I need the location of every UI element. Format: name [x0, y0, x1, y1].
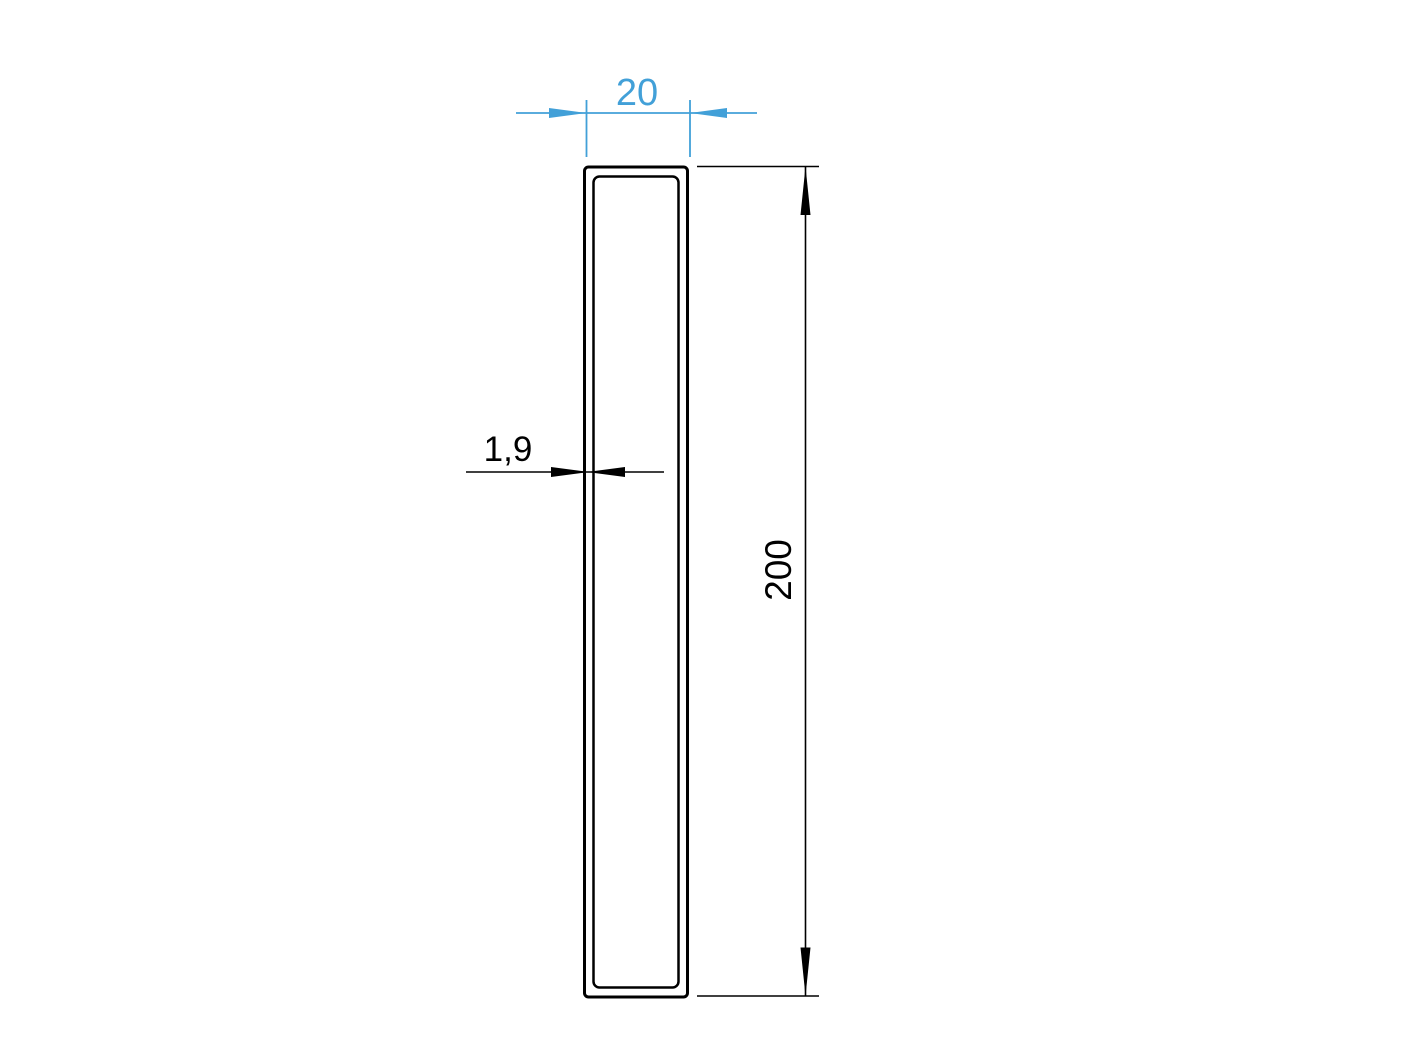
tube-inner-profile [594, 177, 679, 988]
drawing-canvas: 20 1,9 200 [0, 0, 1417, 1062]
technical-drawing: 20 1,9 200 [0, 0, 1417, 1062]
height-dimension-label: 200 [758, 539, 799, 601]
height-dimension: 200 [697, 167, 819, 997]
tube-profile [585, 167, 688, 997]
thickness-dimension-label: 1,9 [484, 430, 533, 469]
width-arrowhead-right-icon [690, 108, 727, 118]
thickness-dimension: 1,9 [466, 430, 664, 477]
width-arrowhead-left-icon [549, 108, 587, 118]
height-arrowhead-down-icon [801, 948, 811, 997]
width-dimension: 20 [516, 72, 757, 157]
height-arrowhead-up-icon [801, 167, 811, 216]
tube-outer-profile [585, 167, 688, 997]
width-dimension-label: 20 [616, 72, 658, 114]
